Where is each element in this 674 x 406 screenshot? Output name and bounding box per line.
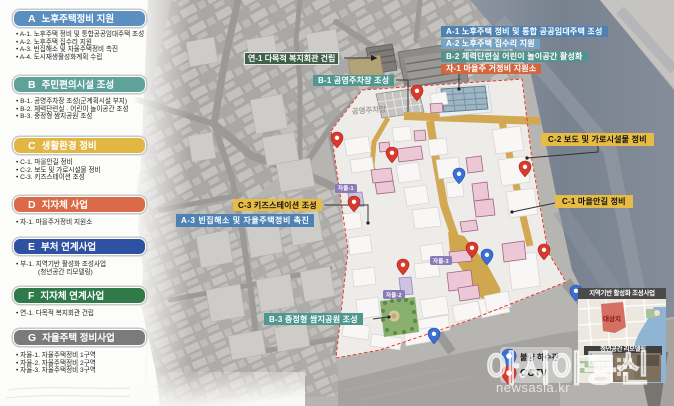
svg-text:대상지: 대상지 xyxy=(603,314,621,323)
